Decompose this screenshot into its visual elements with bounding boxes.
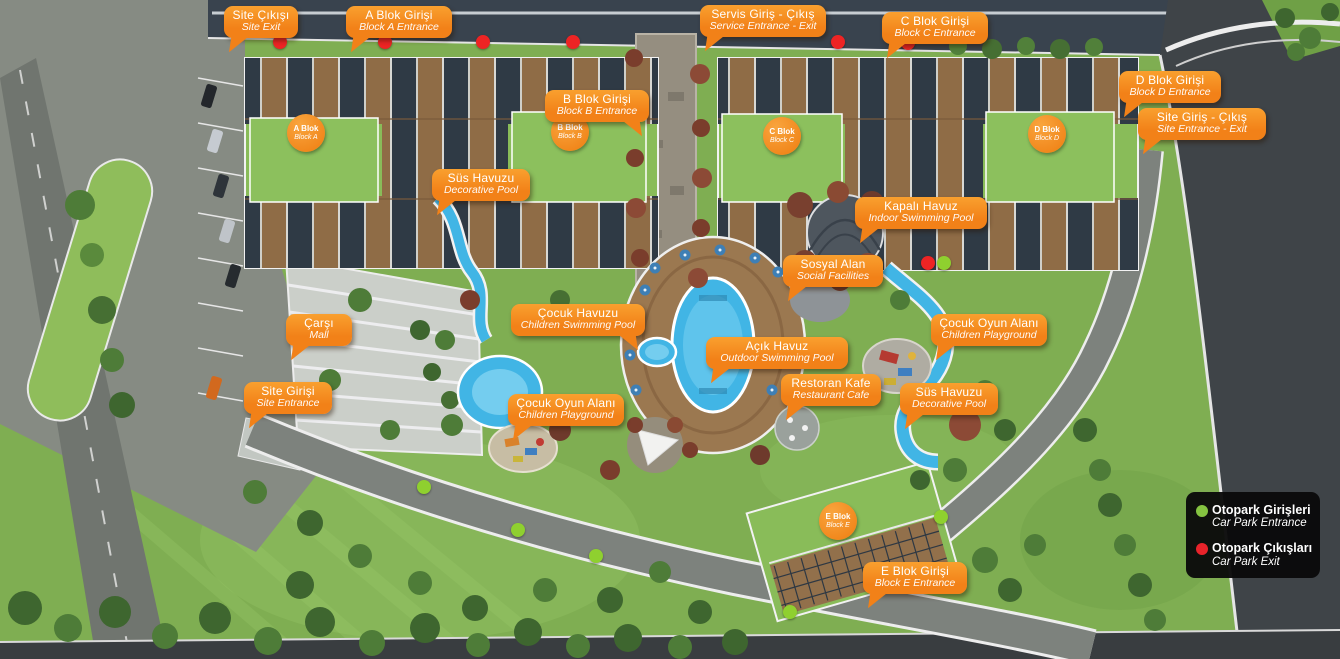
legend-text: Otopark Girişleri Car Park Entrance <box>1212 503 1311 531</box>
callout-label-tr: Site Çıkışı <box>230 9 292 22</box>
callout-label-tr: Çocuk Havuzu <box>517 307 639 320</box>
callout-playground-left: Çocuk Oyun Alanı Children Playground <box>508 394 624 426</box>
callout-block-b-entrance: B Blok Girişi Block B Entrance <box>545 90 649 122</box>
badge-block-a: A Blok Block A <box>287 114 325 152</box>
callout-children-pool: Çocuk Havuzu Children Swimming Pool <box>511 304 645 336</box>
legend-item-carpark-exit: Otopark Çıkışları Car Park Exit <box>1196 541 1310 569</box>
legend-item-carpark-entrance: Otopark Girişleri Car Park Entrance <box>1196 503 1310 531</box>
callout-label-tr: Çarşı <box>292 317 346 330</box>
callout-label-en: Block B Entrance <box>551 106 643 118</box>
callout-label-en: Block E Entrance <box>869 578 961 590</box>
block-badge-label-en: Block A <box>294 134 317 142</box>
callout-indoor-pool: Kapalı Havuz Indoor Swimming Pool <box>855 197 987 229</box>
badge-block-c: C Blok Block C <box>763 117 801 155</box>
carpark-entrance-dot <box>783 605 797 619</box>
carpark-entrance-dot <box>589 549 603 563</box>
callout-label-tr: Süs Havuzu <box>906 386 992 399</box>
callout-site-entrance: Site Girişi Site Entrance <box>244 382 332 414</box>
carpark-exit-dot <box>831 35 845 49</box>
callout-label-en: Outdoor Swimming Pool <box>712 353 842 365</box>
callout-label-tr: Servis Giriş - Çıkış <box>706 8 820 21</box>
legend-label-tr: Otopark Girişleri <box>1212 503 1311 517</box>
callout-decorative-pool-right: Süs Havuzu Decorative Pool <box>900 383 998 415</box>
carpark-entrance-dot <box>937 256 951 270</box>
callout-label-en: Block A Entrance <box>352 22 446 34</box>
callout-site-entrance-exit: Site Giriş - Çıkış Site Entrance - Exit <box>1138 108 1266 140</box>
legend-label-en: Car Park Entrance <box>1212 517 1311 531</box>
callout-label-tr: A Blok Girişi <box>352 9 446 22</box>
callout-block-c-entrance: C Blok Girişi Block C Entrance <box>882 12 988 44</box>
callout-label-tr: B Blok Girişi <box>551 93 643 106</box>
legend-label-en: Car Park Exit <box>1212 556 1312 570</box>
carpark-entrance-dot <box>934 510 948 524</box>
block-badge-label-en: Block E <box>826 522 850 530</box>
callout-label-en: Block C Entrance <box>888 28 982 40</box>
callout-label-en: Children Playground <box>514 410 618 422</box>
callout-outdoor-pool: Açık Havuz Outdoor Swimming Pool <box>706 337 848 369</box>
callout-social-facilities: Sosyal Alan Social Facilities <box>783 255 883 287</box>
callout-label-en: Social Facilities <box>789 271 877 283</box>
callout-label-en: Site Exit <box>230 22 292 34</box>
callout-label-en: Mall <box>292 330 346 342</box>
callout-label-en: Block D Entrance <box>1125 87 1215 99</box>
legend-label-tr: Otopark Çıkışları <box>1212 541 1312 555</box>
callout-site-exit: Site Çıkışı Site Exit <box>224 6 298 38</box>
carpark-exit-dot <box>921 256 935 270</box>
callout-block-e-entrance: E Blok Girişi Block E Entrance <box>863 562 967 594</box>
badge-block-e: E Blok Block E <box>819 502 857 540</box>
legend: Otopark Girişleri Car Park Entrance Otop… <box>1186 492 1320 578</box>
carpark-entrance-dot-icon <box>1196 505 1208 517</box>
callout-label-tr: Site Girişi <box>250 385 326 398</box>
callout-restaurant-cafe: Restoran Kafe Restaurant Cafe <box>781 374 881 406</box>
callout-label-tr: C Blok Girişi <box>888 15 982 28</box>
block-badge-label-tr: E Blok <box>826 512 851 521</box>
site-plan: Otopark Girişleri Car Park Entrance Otop… <box>0 0 1340 659</box>
complex-cd <box>718 58 1138 270</box>
carpark-exit-dot-icon <box>1196 543 1208 555</box>
carpark-entrance-dot <box>511 523 525 537</box>
block-badge-label-tr: C Blok <box>769 127 794 136</box>
callout-label-en: Site Entrance <box>250 398 326 410</box>
callout-label-en: Indoor Swimming Pool <box>861 213 981 225</box>
carpark-exit-dot <box>566 35 580 49</box>
callout-label-en: Restaurant Cafe <box>787 390 875 402</box>
badge-block-d: D Blok Block D <box>1028 115 1066 153</box>
callout-label-tr: E Blok Girişi <box>869 565 961 578</box>
callout-label-tr: Site Giriş - Çıkış <box>1144 111 1260 124</box>
callout-label-tr: D Blok Girişi <box>1125 74 1215 87</box>
block-badge-label-tr: A Blok <box>293 124 318 133</box>
callout-label-tr: Sosyal Alan <box>789 258 877 271</box>
callout-label-tr: Restoran Kafe <box>787 377 875 390</box>
callout-mall: Çarşı Mall <box>286 314 352 346</box>
block-badge-label-en: Block B <box>558 133 582 141</box>
callout-decorative-pool-left: Süs Havuzu Decorative Pool <box>432 169 530 201</box>
legend-text: Otopark Çıkışları Car Park Exit <box>1212 541 1312 569</box>
callout-label-tr: Çocuk Oyun Alanı <box>937 317 1041 330</box>
carpark-entrance-dot <box>417 480 431 494</box>
callout-block-d-entrance: D Blok Girişi Block D Entrance <box>1119 71 1221 103</box>
callout-label-en: Decorative Pool <box>438 185 524 197</box>
callout-label-en: Children Swimming Pool <box>517 320 639 332</box>
block-badge-label-tr: D Blok <box>1034 125 1059 134</box>
callout-block-a-entrance: A Blok Girişi Block A Entrance <box>346 6 452 38</box>
block-badge-label-en: Block C <box>770 137 794 145</box>
carpark-exit-dot <box>476 35 490 49</box>
block-badge-label-tr: B Blok <box>557 123 582 132</box>
callout-service-entrance-exit: Servis Giriş - Çıkış Service Entrance - … <box>700 5 826 37</box>
callout-label-en: Decorative Pool <box>906 399 992 411</box>
callout-label-en: Site Entrance - Exit <box>1144 124 1260 136</box>
callout-label-tr: Kapalı Havuz <box>861 200 981 213</box>
callout-label-tr: Çocuk Oyun Alanı <box>514 397 618 410</box>
callout-playground-right: Çocuk Oyun Alanı Children Playground <box>931 314 1047 346</box>
restaurant-terrace <box>775 406 819 450</box>
callout-label-en: Children Playground <box>937 330 1041 342</box>
callout-label-en: Service Entrance - Exit <box>706 21 820 33</box>
callout-label-tr: Açık Havuz <box>712 340 842 353</box>
callout-label-tr: Süs Havuzu <box>438 172 524 185</box>
block-badge-label-en: Block D <box>1035 135 1059 143</box>
